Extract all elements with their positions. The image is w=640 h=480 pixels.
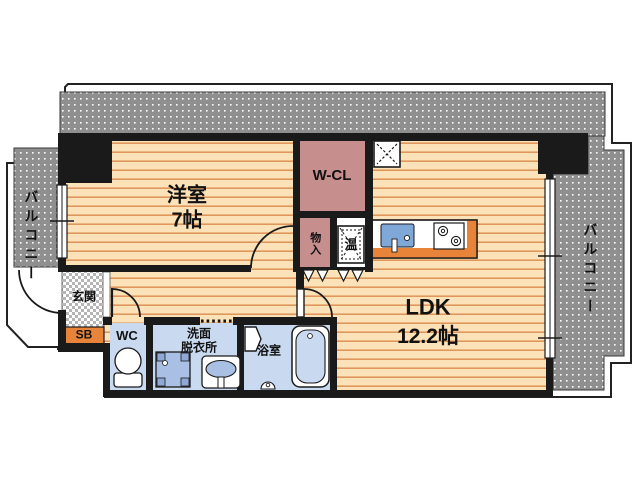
floor-plan-svg xyxy=(0,0,640,480)
water-heater-box xyxy=(337,214,365,270)
washing-machine xyxy=(156,352,190,387)
kitchen-sink xyxy=(381,224,414,247)
ceiling-hatch xyxy=(374,141,400,167)
balcony-right-area xyxy=(553,136,624,390)
kitchen-faucet xyxy=(392,239,397,252)
toilet-fixture xyxy=(114,348,142,387)
stove xyxy=(434,223,464,249)
floor-plan: 洋室 7帖 W-CL LDK 12.2帖 玄関 SB WC 洗面 脱衣所 浴室 … xyxy=(0,0,640,480)
entrance-area xyxy=(62,270,110,327)
storage-room xyxy=(300,214,330,270)
pillar-top-right xyxy=(538,133,588,174)
bathtub-fixture xyxy=(292,326,329,387)
sink-fixture xyxy=(202,356,240,388)
pillar-top-left xyxy=(58,133,112,183)
balcony-top-area xyxy=(60,92,605,136)
wcl-room xyxy=(300,137,365,214)
shoe-box xyxy=(62,327,104,344)
kitchen-counter xyxy=(372,220,477,258)
balcony-left-area xyxy=(14,148,60,267)
